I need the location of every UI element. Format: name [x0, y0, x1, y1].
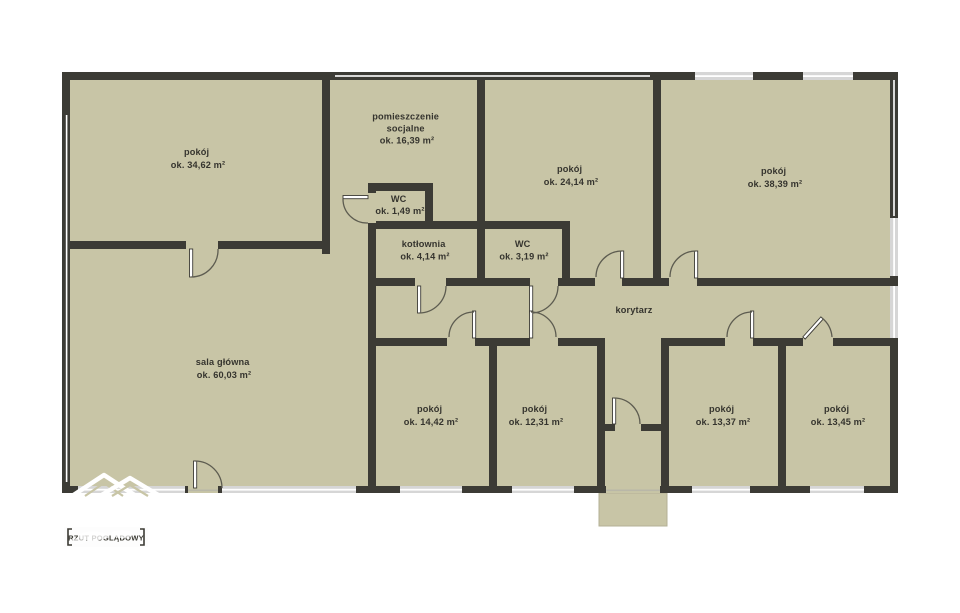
opening-pokoj13a — [725, 338, 753, 346]
threshold-entrance — [606, 490, 660, 492]
watermark-smudge — [111, 530, 133, 538]
door-leaf — [473, 311, 476, 338]
floor-plan-page: pokój ok. 34,62 m² pomieszczenie socjaln… — [0, 0, 960, 613]
window-glass-line — [803, 75, 853, 77]
wall-v-main-spine — [368, 183, 376, 490]
wall-h-corridor-top — [368, 278, 898, 286]
opening-pokoj13b — [803, 338, 833, 346]
room-floor-pokoj-13a — [669, 346, 778, 486]
wall-v-wc-large-right — [562, 221, 570, 286]
floor-plan-drawing: pokój ok. 34,62 m² pomieszczenie socjaln… — [0, 0, 960, 613]
door-leaf — [343, 196, 368, 199]
opening-pokoj12 — [530, 338, 558, 346]
wall-v-passage-left — [597, 338, 605, 490]
door-leaf — [613, 398, 616, 424]
room-floor-pokoj-13b — [786, 346, 890, 486]
window-glass-line — [893, 218, 895, 276]
wall-stub-vestibule-left — [605, 424, 615, 431]
opening-kotlownia — [415, 278, 446, 286]
wall-v-passage-right — [661, 338, 669, 490]
wall-v-socjalne-right — [477, 72, 485, 286]
entrance-porch — [599, 493, 667, 526]
window-glass-line — [810, 489, 864, 491]
threshold-sala-door — [188, 490, 218, 492]
door-post — [660, 486, 666, 493]
door-leaf — [418, 286, 421, 313]
wall-v-socjalne-left — [322, 72, 330, 254]
opening-pokoj24 — [595, 278, 622, 286]
wall-stub-vestibule-right — [641, 424, 661, 431]
door-leaf — [751, 311, 754, 338]
window-glass-line — [695, 75, 753, 77]
room-floor-pokoj-12 — [497, 346, 597, 486]
door-post — [601, 486, 606, 493]
door-leaf — [190, 249, 193, 277]
wall-h-wc-small-top — [368, 183, 433, 191]
opening-pokoj14 — [447, 338, 475, 346]
door-leaf — [530, 311, 533, 338]
door-leaf — [621, 251, 624, 278]
window-glass-line — [692, 489, 750, 491]
wall-v-pokoj13a-13b — [778, 338, 786, 490]
room-label-korytarz: korytarz — [616, 305, 653, 315]
room-floor-pokoj-14 — [376, 346, 489, 486]
watermark-smudge — [70, 538, 86, 544]
opening-pokoj38 — [669, 278, 697, 286]
window-glass-line — [893, 286, 895, 338]
door-leaf — [695, 251, 698, 278]
plan-type-stamp: RZUT POGLĄDOWY — [64, 527, 148, 547]
opening-corridor-passage — [605, 338, 661, 346]
opening-wc-large — [530, 278, 558, 286]
wall-cavity-line-left — [66, 115, 68, 482]
window-glass-line — [400, 489, 462, 491]
door-leaf — [530, 286, 533, 313]
window-glass-line — [512, 489, 574, 491]
wall-h-wc-bottom — [368, 221, 570, 229]
wall-v-pokoj14-12 — [489, 338, 497, 490]
door-leaf — [194, 461, 197, 488]
wall-v-pokoj24-38 — [653, 72, 661, 286]
room-floor-sala-glowna — [70, 249, 368, 486]
window-glass-line — [222, 489, 356, 491]
opening-pokoj-sala — [186, 241, 218, 249]
wall-cavity-line-top — [335, 75, 650, 77]
wall-cavity-line-right — [893, 80, 895, 216]
